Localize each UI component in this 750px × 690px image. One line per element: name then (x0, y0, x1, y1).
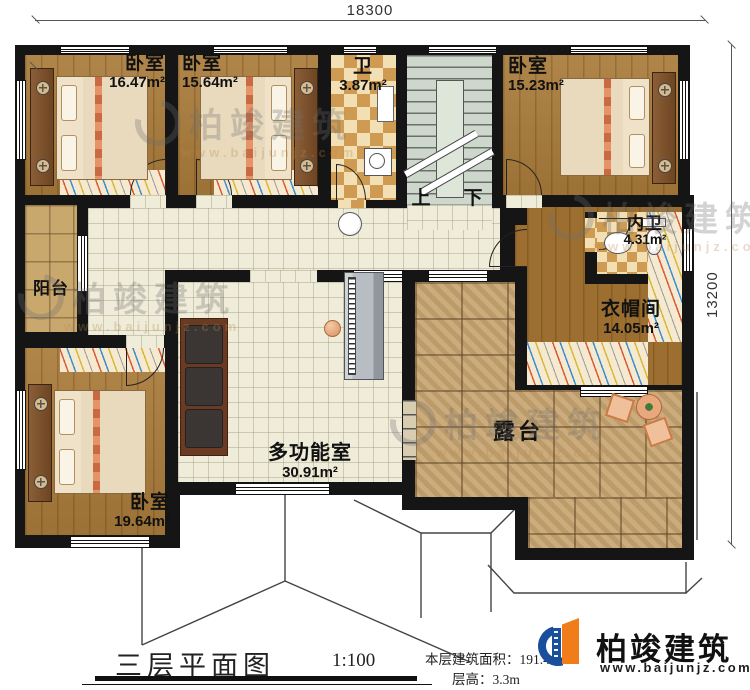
door-opening-bedroom2 (196, 195, 232, 208)
room-label-cloakroom: 衣帽间14.05m² (576, 300, 686, 337)
window-bedroom1-left (16, 80, 26, 160)
terrace-table (636, 394, 662, 420)
window-hallway-south (428, 270, 488, 282)
lamp-knob-icon (300, 159, 314, 173)
window-stairwell-top (428, 46, 497, 54)
window-bathroom-top (343, 46, 377, 54)
floor-terrace-ext (528, 497, 682, 548)
title-underline-thin (82, 684, 432, 685)
lamp-knob-icon (34, 397, 48, 411)
floor-plan-canvas: 上 下 (0, 0, 750, 690)
window-multi-room-bottom (235, 483, 330, 495)
door-opening-inner-bath (585, 218, 597, 252)
dimension-line-top (35, 20, 705, 21)
lamp-knob-icon (658, 83, 672, 97)
floor-hallway-leg (88, 270, 165, 335)
sofa-cushion (185, 367, 223, 406)
ball (324, 320, 341, 337)
company-logo-icon (538, 616, 590, 676)
room-label-multi-room: 多功能室 30.91m² (225, 443, 395, 481)
washer-drum-icon (338, 212, 362, 236)
dimension-top-value: 18300 (320, 2, 420, 19)
bed-headboard (652, 72, 676, 184)
bed-bedroom1 (56, 76, 148, 180)
dimension-line-right (731, 45, 732, 545)
window-bedroom3-top (570, 46, 648, 54)
balcony-sliding-door (77, 235, 88, 292)
lamp-knob-icon (300, 81, 314, 95)
room-label-inner-bath: 内卫 4.31m² (608, 215, 682, 248)
floor-balcony (25, 205, 77, 332)
floor-height-note: 层高：3.3m (452, 668, 520, 688)
window-bedroom4-bottom (70, 536, 150, 548)
room-label-bathroom: 卫3.87m² (331, 57, 395, 94)
title-underline-thick (95, 676, 417, 681)
bed-headboard (28, 384, 52, 502)
closet-cloakroom-bottom (527, 342, 648, 385)
bed-headboard (30, 68, 54, 186)
stairs-down-label: 下 (458, 183, 488, 210)
company-logo: 柏竣建筑 www.baijunjz.com (538, 614, 743, 680)
window-bedroom4-left (16, 390, 26, 470)
door-opening-bedroom4 (126, 335, 164, 348)
stairs-up-label: 上 (406, 183, 436, 210)
sofa-cushion (185, 409, 223, 448)
door-opening-bedroom3 (506, 195, 542, 208)
plan-scale: 1:100 (332, 650, 375, 672)
bed-bedroom2 (200, 76, 292, 180)
room-label-bedroom3: 卧室15.23m² (508, 57, 608, 94)
sofa-cushion (185, 325, 223, 364)
dimension-right-value: 13200 (704, 255, 724, 335)
window-bedroom3-right (679, 80, 689, 160)
bed-bedroom4 (54, 390, 146, 494)
room-label-terrace: 露台 (468, 420, 568, 444)
terrace-door-threshold (403, 400, 416, 460)
window-bedroom2-top (213, 46, 288, 54)
room-label-balcony: 阳台 (24, 280, 78, 298)
lamp-knob-icon (658, 159, 672, 173)
lamp-knob-icon (34, 475, 48, 489)
piano-keys (348, 277, 356, 375)
door-opening-bathroom (338, 200, 366, 208)
room-label-bedroom4: 卧室19.64m² (80, 493, 170, 530)
door-opening-multi-room (250, 270, 317, 282)
room-label-bedroom2: 卧室15.64m² (182, 54, 287, 91)
door-opening-bedroom1 (130, 195, 166, 208)
window-bedroom1-top (60, 46, 130, 54)
lamp-knob-icon (36, 81, 50, 95)
company-logo-website: www.baijunjz.com (600, 660, 750, 675)
lamp-knob-icon (36, 159, 50, 173)
room-label-bedroom1: 卧室16.47m² (60, 54, 165, 91)
washing-machine (364, 148, 392, 176)
floor-terrace-upper (415, 282, 515, 390)
piano (344, 272, 384, 380)
window-inner-bath-right (683, 228, 693, 272)
bed-headboard (294, 68, 318, 186)
